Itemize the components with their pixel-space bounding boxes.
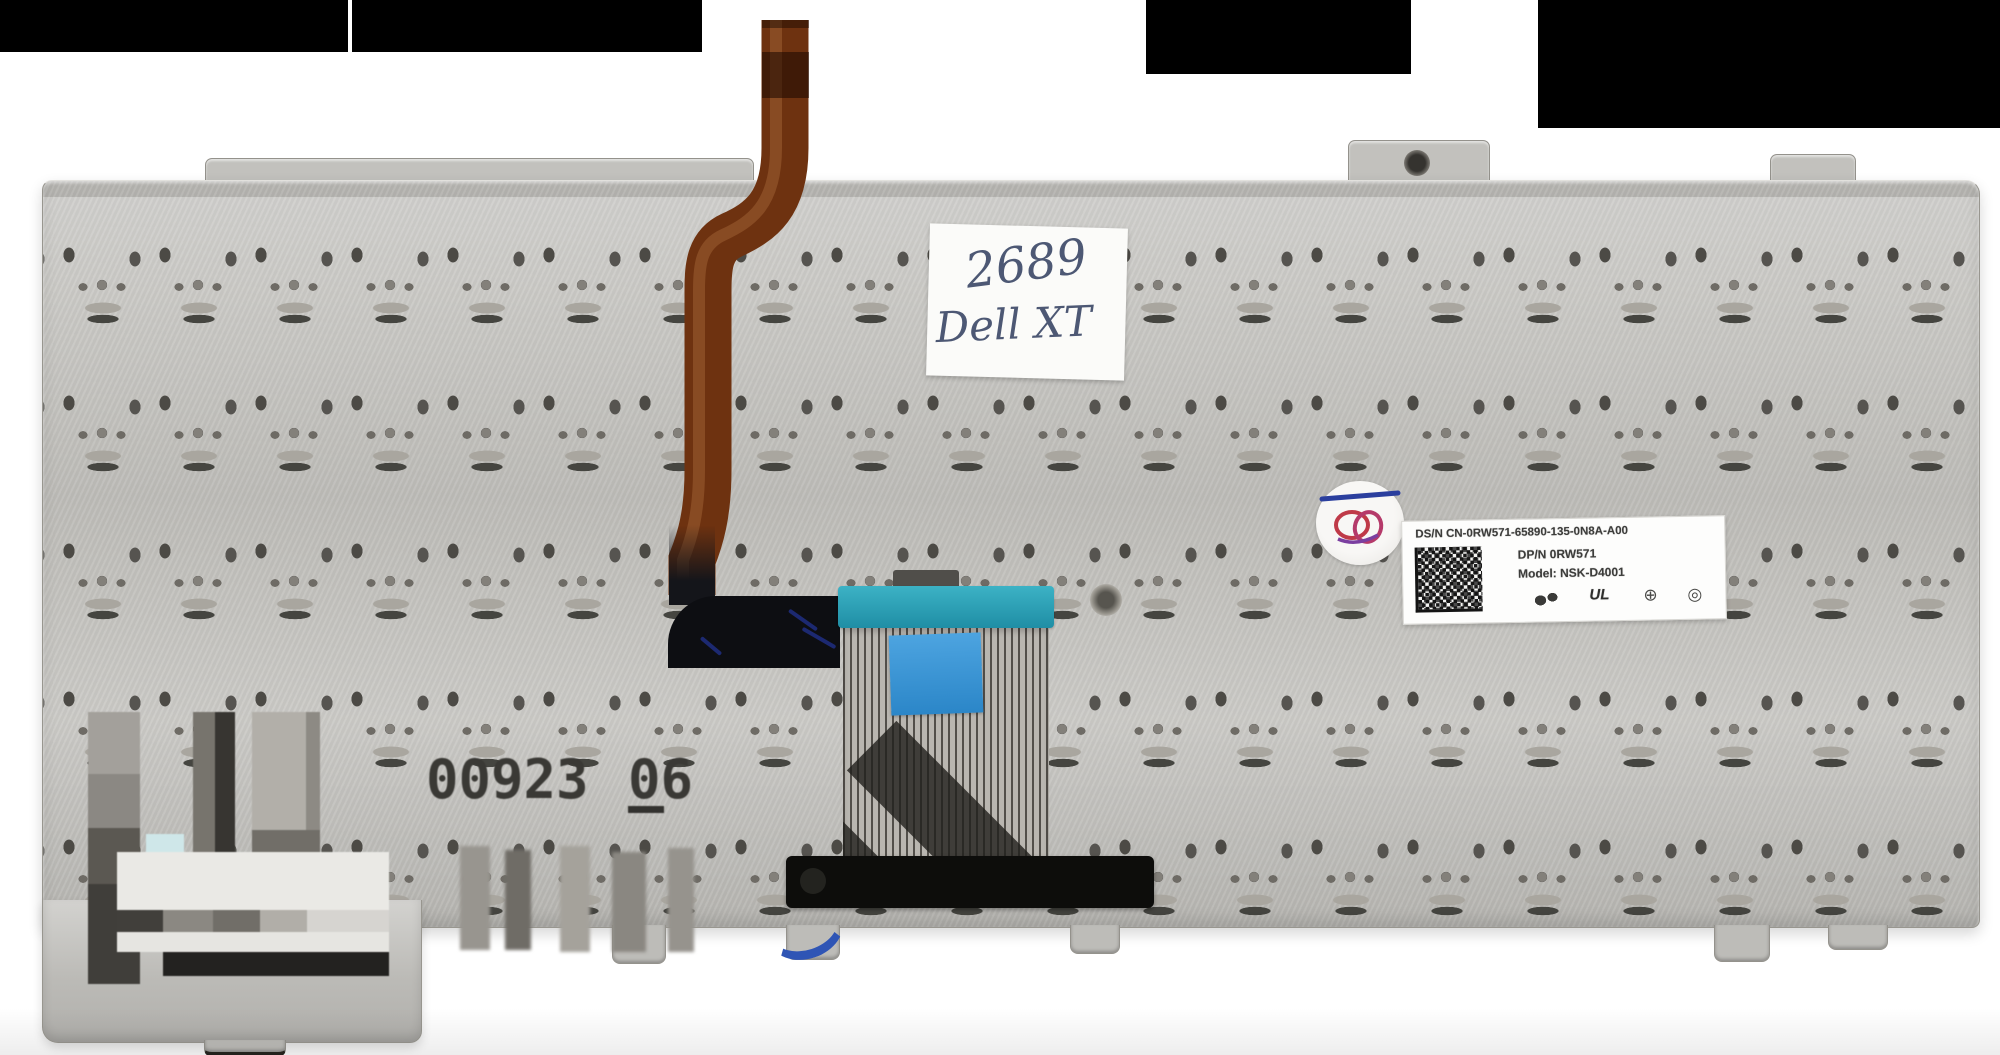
plate-bottom-tab-3 [1070, 925, 1120, 954]
mosaic-cell [117, 910, 163, 932]
standoff-boss [1090, 584, 1122, 616]
cable-black-transition [669, 525, 715, 605]
pixelated-censor-block [80, 705, 400, 985]
glossy-black-flex [668, 596, 840, 668]
label-line-2: DP/N 0RW571 [1518, 546, 1597, 561]
blurred-bar [460, 846, 490, 950]
maker-mark-icon [1533, 591, 1559, 607]
label-line-3: Model: NSK-D4001 [1518, 565, 1625, 581]
part-label: DS/N CN-0RW571-65890-135-0N8A-A00 DP/N 0… [1401, 515, 1727, 625]
censor-bar-top-right [1538, 0, 2000, 128]
mosaic-cell [213, 910, 260, 932]
mosaic-cell [306, 712, 320, 834]
mosaic-cell [146, 834, 184, 852]
circle-mark-icon-1: ⊕ [1643, 585, 1658, 605]
mosaic-cell [163, 910, 213, 932]
ul-mark-icon: UL [1589, 586, 1609, 603]
mosaic-cell [260, 910, 307, 932]
photo-bottom-shadow [0, 1008, 2000, 1055]
stamped-number-right: 06 [628, 748, 693, 811]
blurred-bar [612, 852, 646, 952]
plate-bottom-tab-5 [1828, 925, 1888, 950]
circle-mark-icon-2: ◎ [1687, 585, 1702, 605]
qc-scribble [1316, 481, 1404, 565]
datamatrix-code-icon [1415, 546, 1483, 612]
mosaic-cell [215, 712, 235, 854]
mosaic-cell [88, 774, 140, 828]
blurred-bar [505, 850, 531, 950]
note-line-2: Dell XT [935, 300, 1093, 349]
plate-bottom-tab-4 [1714, 925, 1770, 962]
mosaic-cell [117, 932, 389, 952]
teal-tape-strip [838, 586, 1054, 628]
blurred-bar [668, 848, 694, 952]
blue-tape-square [889, 632, 984, 715]
mosaic-cell [88, 712, 140, 774]
mosaic-cell [193, 712, 215, 854]
mosaic-cell [252, 830, 320, 854]
qc-sticker [1316, 481, 1404, 565]
product-photo: 00923 06 2689 Dell XT [0, 0, 2000, 1055]
blue-sheen-streak [700, 636, 722, 656]
sticky-note: 2689 Dell XT [926, 223, 1128, 380]
flex-end-black-bar [786, 856, 1154, 908]
stamped-number-left: 00923 [426, 748, 589, 811]
mosaic-cell [163, 952, 389, 976]
label-line-1: DS/N CN-0RW571-65890-135-0N8A-A00 [1415, 525, 1628, 541]
mosaic-cell [117, 852, 389, 910]
censor-bar-top-left-1 [0, 0, 348, 52]
note-line-1: 2689 [962, 232, 1089, 296]
blurred-bar [560, 846, 590, 952]
mount-bracket-hole [1404, 150, 1430, 176]
flex-cable-area [843, 628, 1155, 858]
censor-bar-top-middle [1146, 0, 1411, 74]
black-bar-highlight [800, 868, 826, 894]
mosaic-cell [307, 910, 389, 932]
stamped-underline [628, 806, 664, 813]
blue-sheen-streak [802, 627, 837, 649]
